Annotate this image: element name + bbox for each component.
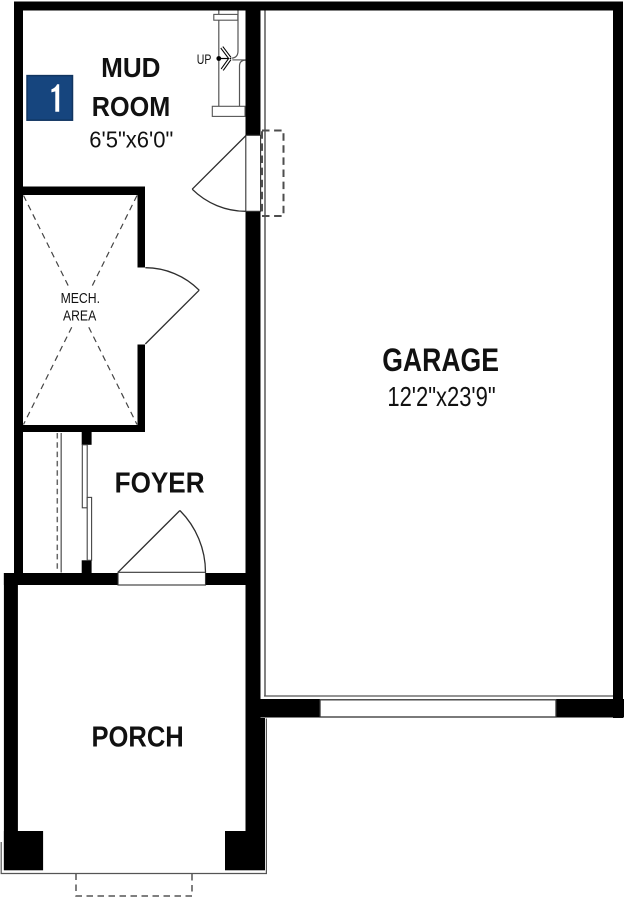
svg-text:ROOM: ROOM: [92, 91, 170, 122]
svg-text:AREA: AREA: [63, 308, 97, 325]
svg-text:MECH.: MECH.: [61, 290, 100, 307]
svg-text:FOYER: FOYER: [115, 468, 205, 500]
svg-text:MUD: MUD: [101, 52, 160, 83]
svg-text:UP: UP: [197, 51, 212, 67]
svg-text:GARAGE: GARAGE: [382, 342, 499, 378]
svg-text:PORCH: PORCH: [91, 722, 183, 754]
svg-text:6'5"x6'0": 6'5"x6'0": [89, 126, 173, 152]
svg-text:12'2"x23'9": 12'2"x23'9": [387, 381, 495, 412]
